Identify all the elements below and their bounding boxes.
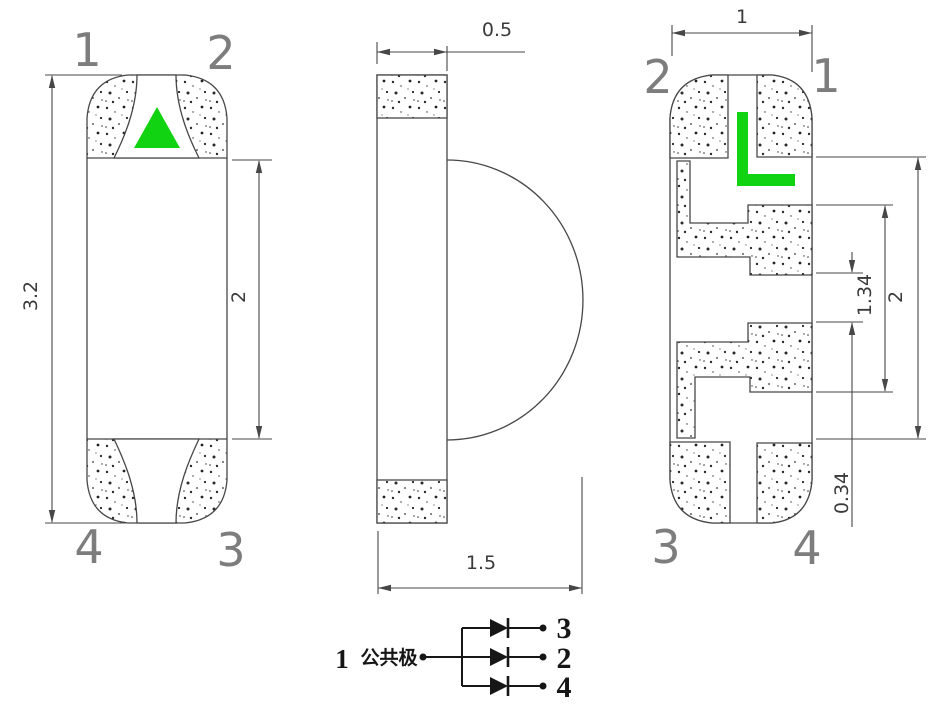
- back-dim-pad-gap-text: 0.34: [831, 472, 853, 514]
- schematic-terminal-dot-top: [540, 625, 547, 632]
- back-dim-pad-span-text: 1.34: [854, 274, 876, 316]
- front-dim-body-height-text: 2: [228, 291, 250, 303]
- back-dim-body-height-text: 2: [885, 291, 907, 303]
- drawing-canvas: 1 2 4 3 3.2 2: [0, 0, 934, 710]
- back-pin-label-top-right: 1: [811, 49, 840, 103]
- side-dim-body-thickness-text: 0.5: [482, 19, 512, 41]
- schematic-branch-top-pin: 3: [557, 612, 572, 645]
- schematic-terminal-dot-bottom: [540, 683, 547, 690]
- schematic-common-pin-label: 公共极: [360, 646, 418, 669]
- schematic-common-pin-number: 1: [335, 644, 349, 674]
- back-pin-label-top-left: 2: [643, 50, 672, 104]
- front-dim-overall-height-text: 3.2: [20, 281, 42, 311]
- schematic-branch-bottom-pin: 4: [557, 671, 572, 704]
- back-dim-width-text: 1: [736, 6, 748, 28]
- back-pin-label-bottom-right: 4: [792, 521, 821, 575]
- schematic-terminal-dot-middle: [540, 654, 547, 661]
- front-pin-label-top-right: 2: [206, 26, 235, 80]
- front-pin-label-top-left: 1: [72, 23, 101, 77]
- side-body: [377, 75, 447, 523]
- front-pin-label-bottom-left: 4: [74, 520, 103, 574]
- back-pin-label-bottom-left: 3: [651, 520, 680, 574]
- side-top-band: [377, 75, 447, 118]
- schematic-common-node-dot: [420, 654, 427, 661]
- front-pin-label-bottom-right: 3: [216, 523, 245, 577]
- side-dim-overall-thickness-text: 1.5: [466, 552, 496, 574]
- side-bottom-band: [377, 480, 447, 523]
